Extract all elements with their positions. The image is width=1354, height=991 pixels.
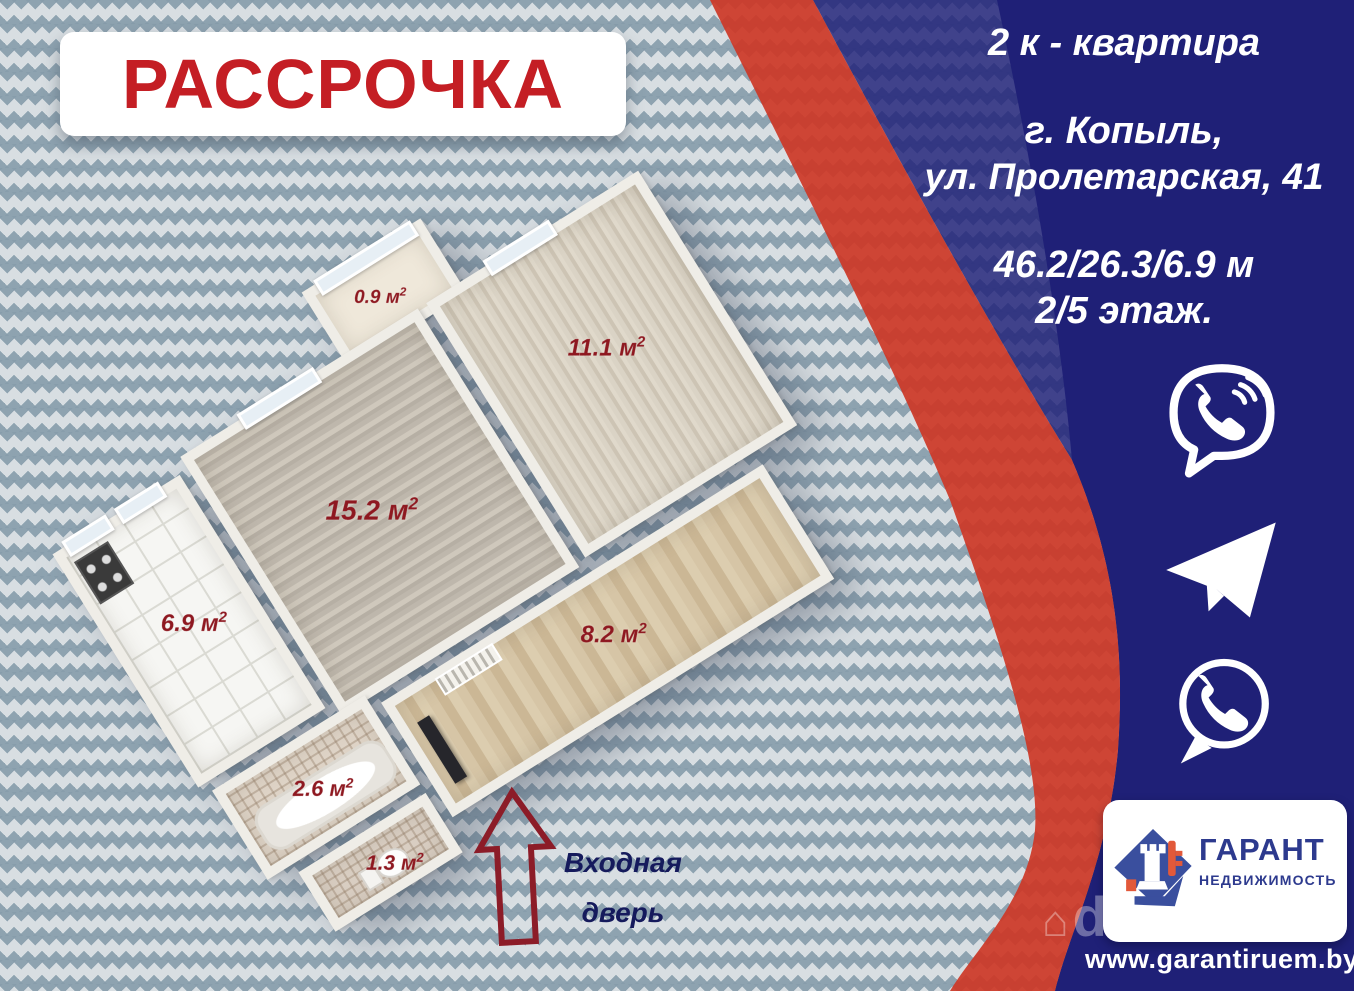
area-label-hall: 8.2 м2 (581, 621, 647, 649)
dominfo-watermark: ⌂dominfo (1042, 884, 1307, 949)
area-label-bathroom: 2.6 м2 (293, 776, 354, 802)
listing-city: г. Копыль, (894, 110, 1354, 153)
stove-icon (74, 541, 134, 605)
entrance-label-line2: дверь (548, 888, 698, 938)
listing-floor: 2/5 этаж. (894, 290, 1354, 333)
viber-icon (1160, 360, 1284, 494)
entrance-label: Входная дверь (548, 838, 698, 939)
house-icon: ⌂ (1042, 897, 1071, 946)
area-label-wc: 1.3 м2 (366, 850, 424, 876)
listing-type: 2 к - квартира (894, 22, 1354, 65)
area-label-kitchen: 6.9 м2 (161, 610, 227, 638)
watermark-text: dominfo (1073, 885, 1308, 948)
listing-dimensions: 46.2/26.3/6.9 м (894, 244, 1354, 287)
promo-banner: РАССРОЧКА (60, 32, 626, 136)
whatsapp-icon (1160, 646, 1284, 780)
flyer-canvas: РАССРОЧКА 2 к - квартира г. Копыль, ул. … (0, 0, 1354, 991)
area-label-balcony: 0.9 м2 (354, 286, 406, 309)
promo-label: РАССРОЧКА (122, 44, 564, 124)
agency-name: ГАРАНТ (1199, 832, 1325, 868)
telegram-icon (1160, 508, 1284, 632)
contact-icons (1157, 360, 1287, 780)
area-label-bedroom: 11.1 м2 (568, 335, 646, 363)
listing-street: ул. Пролетарская, 41 (894, 156, 1354, 198)
area-label-living: 15.2 м2 (326, 493, 419, 526)
entrance-door-leaf (417, 715, 467, 783)
entrance-label-line1: Входная (548, 838, 698, 888)
